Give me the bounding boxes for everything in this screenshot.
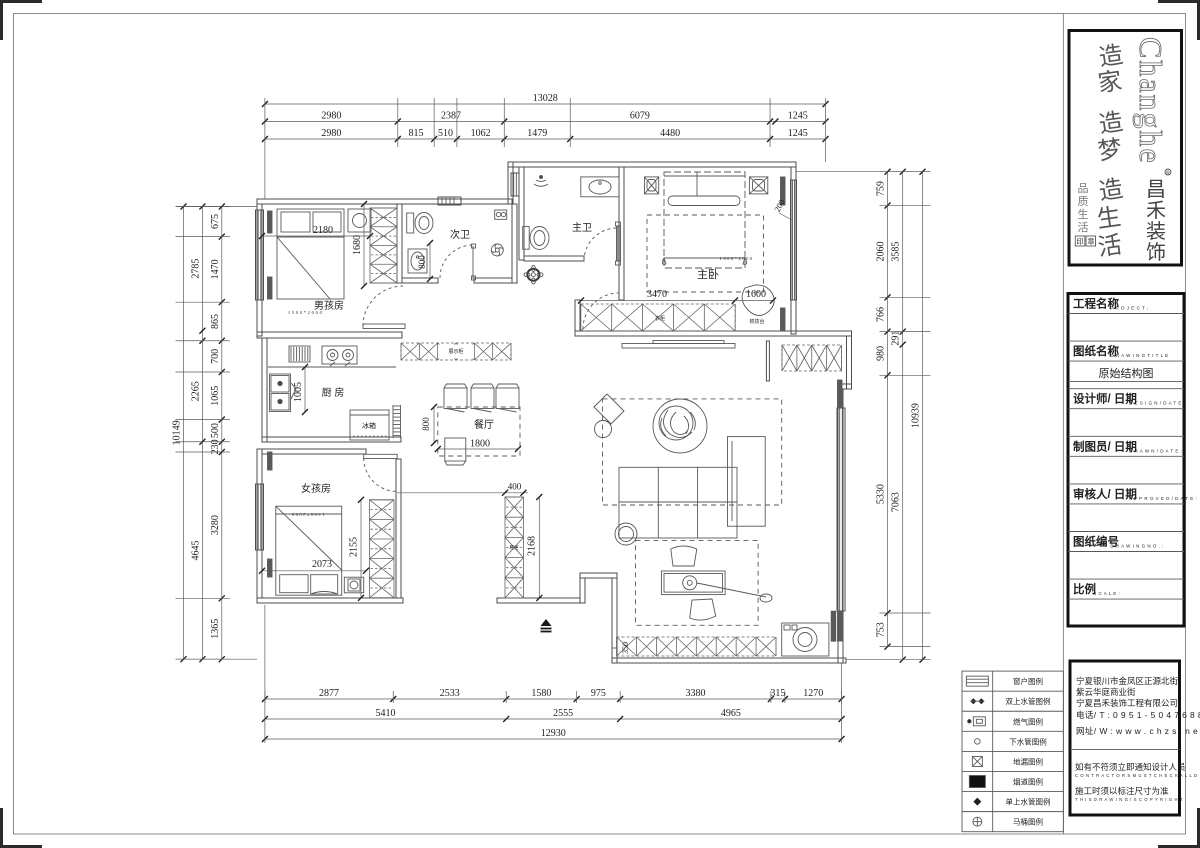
svg-text:1245: 1245 [788, 128, 808, 139]
svg-text:造: 造 [1097, 109, 1125, 139]
svg-text:宁夏昌禾装饰工程有限公司: 宁夏昌禾装饰工程有限公司 [1076, 698, 1178, 708]
svg-text:窗户图例: 窗户图例 [1013, 676, 1043, 686]
svg-text:1065: 1065 [210, 386, 221, 406]
svg-text:如有不符须立即通知设计人员: 如有不符须立即通知设计人员 [1075, 762, 1186, 772]
svg-text:4965: 4965 [721, 708, 741, 719]
svg-text:审核人/ 日期: 审核人/ 日期 [1073, 487, 1137, 501]
svg-text:紫云华庭商业街: 紫云华庭商业街 [1076, 687, 1136, 697]
svg-text:设计师/ 日期: 设计师/ 日期 [1073, 392, 1137, 406]
svg-text:2555: 2555 [553, 708, 573, 719]
svg-text:生: 生 [1095, 204, 1123, 234]
svg-text:D E S I G N / D A T E :: D E S I G N / D A T E : [1129, 401, 1185, 406]
svg-text:510: 510 [438, 128, 453, 139]
svg-text:造: 造 [1097, 42, 1125, 72]
svg-text:1800: 1800 [470, 439, 490, 450]
svg-text:12930: 12930 [541, 728, 566, 739]
svg-text:D R A W N / D A T E :: D R A W N / D A T E : [1129, 448, 1182, 453]
svg-text:1062: 1062 [471, 128, 491, 139]
svg-text:975: 975 [591, 688, 606, 699]
svg-text:1 8 0 0 * 2 0 0 0: 1 8 0 0 * 2 0 0 0 [720, 256, 753, 261]
svg-text:2785: 2785 [190, 259, 201, 279]
svg-text:生: 生 [1078, 207, 1089, 221]
svg-text:下水管图例: 下水管图例 [1009, 736, 1047, 746]
svg-text:4480: 4480 [660, 128, 680, 139]
svg-text:展示柜: 展示柜 [448, 348, 463, 355]
svg-text:1680: 1680 [352, 235, 363, 255]
svg-text:1470: 1470 [210, 259, 221, 279]
svg-text:单上水管图例: 单上水管图例 [1006, 797, 1051, 807]
svg-text:315: 315 [770, 688, 785, 699]
svg-text:餐厅: 餐厅 [474, 418, 494, 431]
svg-text:5330: 5330 [876, 484, 887, 504]
svg-text:C O N T R A C T O R S M U S: C O N T R A C T O R S M U S T C H E C K … [1075, 773, 1198, 778]
svg-text:13028: 13028 [533, 93, 558, 104]
svg-text:冰箱: 冰箱 [362, 421, 376, 430]
svg-text:2265: 2265 [190, 381, 201, 401]
svg-text:500: 500 [210, 423, 221, 438]
svg-text:S C A L E :: S C A L E : [1093, 591, 1120, 596]
svg-text:1600: 1600 [746, 289, 766, 300]
svg-text:800: 800 [421, 417, 431, 431]
svg-text:815: 815 [408, 128, 423, 139]
svg-text:梳妆台: 梳妆台 [749, 318, 764, 325]
svg-text:350: 350 [621, 642, 630, 654]
svg-text:Changhe: Changhe [1133, 37, 1169, 165]
svg-text:D R A W I N G N O . :: D R A W I N G N O . : [1110, 544, 1164, 549]
svg-text:2168: 2168 [527, 536, 538, 556]
svg-text:饰: 饰 [1146, 241, 1166, 264]
svg-text:主卫: 主卫 [572, 222, 592, 234]
svg-text:766: 766 [876, 307, 887, 322]
svg-text:原始结构图: 原始结构图 [1099, 366, 1154, 380]
svg-text:2877: 2877 [319, 688, 339, 699]
svg-text:宁夏银川市金凤区正源北街: 宁夏银川市金凤区正源北街 [1076, 676, 1179, 686]
svg-text:双上水管图例: 双上水管图例 [1006, 696, 1051, 706]
svg-text:装: 装 [1146, 220, 1166, 243]
svg-text:P R O J E C T :: P R O J E C T : [1110, 306, 1148, 311]
svg-text:质: 质 [1078, 195, 1089, 208]
svg-text:1245: 1245 [788, 111, 808, 122]
svg-text:男孩房: 男孩房 [314, 299, 344, 312]
svg-text:主卧: 主卧 [697, 268, 719, 281]
svg-text:网址/ W : w w w . c h z s . n e: 网址/ W : w w w . c h z s . n e t [1076, 726, 1200, 736]
svg-text:753: 753 [876, 622, 887, 637]
svg-text:烟道图例: 烟道图例 [1013, 777, 1043, 787]
svg-text:6079: 6079 [630, 111, 650, 122]
svg-text:759: 759 [876, 181, 887, 196]
svg-text:造: 造 [1097, 176, 1125, 206]
svg-text:鞋柜: 鞋柜 [510, 544, 519, 551]
svg-text:家: 家 [1096, 68, 1124, 98]
svg-text:2060: 2060 [876, 241, 887, 261]
svg-text:电话/ T : 0 9 5 1 - 5 0 4 7 6 8: 电话/ T : 0 9 5 1 - 5 0 4 7 6 8 8 [1076, 710, 1200, 720]
svg-text:1005: 1005 [293, 382, 304, 402]
svg-text:700: 700 [210, 349, 221, 364]
svg-text:D R A W I N G T I T L E: D R A W I N G T I T L E [1110, 353, 1168, 358]
svg-text:1270: 1270 [803, 688, 823, 699]
svg-text:1479: 1479 [527, 128, 547, 139]
svg-text:3280: 3280 [210, 515, 221, 535]
svg-text:1365: 1365 [210, 619, 221, 639]
svg-text:印: 印 [1077, 238, 1084, 246]
svg-text:禾: 禾 [1146, 199, 1166, 222]
svg-text:5410: 5410 [376, 708, 396, 719]
svg-text:3585: 3585 [891, 242, 902, 262]
svg-text:3380: 3380 [686, 688, 706, 699]
svg-text:昌: 昌 [1146, 179, 1166, 201]
svg-text:R: R [1166, 171, 1170, 177]
svg-text:3470: 3470 [647, 289, 667, 300]
svg-text:A P P R O V E D / D A T E :: A P P R O V E D / D A T E : [1129, 496, 1197, 501]
svg-text:865: 865 [210, 314, 221, 329]
svg-text:章: 章 [1088, 237, 1095, 246]
svg-text:燃气图例: 燃气图例 [1013, 716, 1043, 726]
svg-text:地漏图例: 地漏图例 [1013, 756, 1043, 766]
svg-text:马桶图例: 马桶图例 [1013, 817, 1043, 827]
svg-text:女孩房: 女孩房 [301, 482, 331, 495]
svg-text:7063: 7063 [891, 492, 902, 512]
svg-text:800: 800 [417, 255, 427, 269]
svg-text:T H I S D R A W I N G I S: T H I S D R A W I N G I S C O P Y R I G … [1075, 797, 1183, 802]
svg-text:1580: 1580 [531, 688, 551, 699]
svg-text:2155: 2155 [349, 537, 360, 557]
svg-text:980: 980 [876, 346, 887, 361]
svg-text:梦: 梦 [1096, 136, 1124, 166]
svg-text:活: 活 [1078, 221, 1089, 234]
svg-text:1 5 0 0 * 2 0 0 0: 1 5 0 0 * 2 0 0 0 [291, 512, 324, 517]
svg-text:675: 675 [210, 214, 221, 229]
svg-text:活: 活 [1096, 232, 1124, 262]
svg-text:制图员/ 日期: 制图员/ 日期 [1073, 439, 1137, 453]
svg-text:2180: 2180 [313, 225, 333, 236]
svg-text:品: 品 [1078, 182, 1089, 195]
svg-text:2387: 2387 [441, 111, 461, 122]
svg-text:次卫: 次卫 [450, 228, 470, 241]
svg-text:施工时须以标注尺寸为准: 施工时须以标注尺寸为准 [1075, 786, 1169, 796]
svg-text:400: 400 [508, 482, 522, 492]
svg-text:2073: 2073 [312, 559, 332, 570]
svg-text:厨 房: 厨 房 [322, 386, 345, 399]
svg-text:2980: 2980 [321, 128, 341, 139]
svg-text:2533: 2533 [440, 688, 460, 699]
svg-text:4645: 4645 [190, 540, 201, 560]
svg-text:衣柜: 衣柜 [655, 315, 665, 322]
svg-text:291: 291 [891, 331, 902, 346]
svg-text:10939: 10939 [911, 403, 922, 428]
svg-text:2980: 2980 [321, 111, 341, 122]
